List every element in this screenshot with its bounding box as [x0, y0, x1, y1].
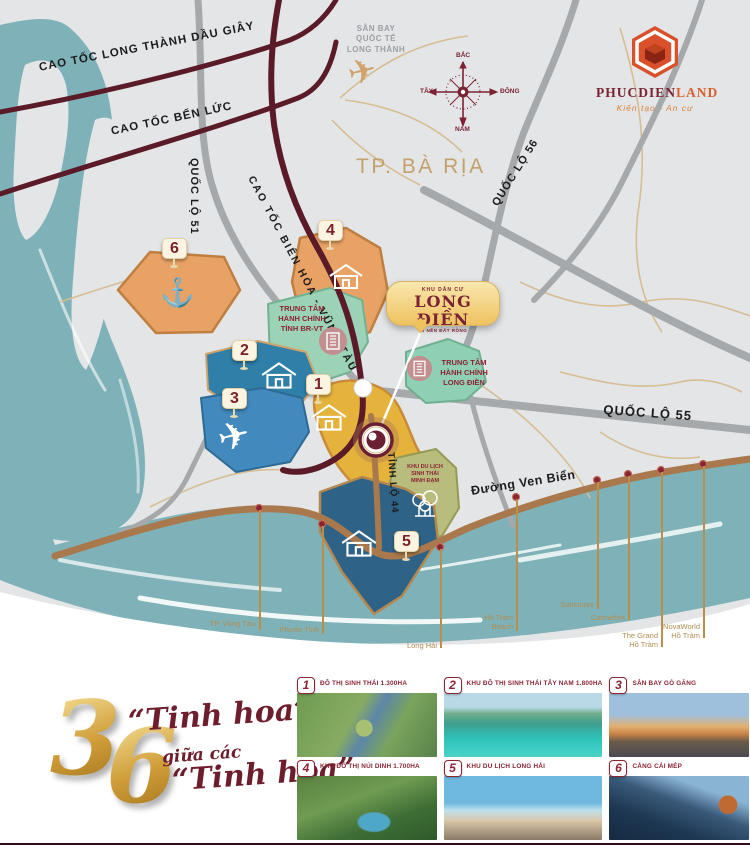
legend-label: SÂN BAY GÒ GĂNG [632, 677, 696, 688]
legend-number: 6 [609, 760, 627, 777]
legend-grid: 1 ĐÔ THỊ SINH THÁI 1.300HA 2 KHU ĐÔ THỊ … [297, 677, 749, 840]
minhdam-label: KHU DU LỊCH SINH THÁI MINH ĐẠM [402, 464, 448, 485]
legend-number: 5 [444, 760, 462, 777]
legend-item-5: 5 KHU DU LỊCH LONG HẢI [444, 760, 603, 840]
trees-icon [408, 488, 442, 522]
city-label-baria: TP. BÀ RỊA [356, 155, 486, 179]
brand-tagline: Kiến tạo - An cư [596, 103, 714, 113]
bottom-divider [0, 843, 750, 845]
pinline-phuoctinh [322, 526, 324, 634]
road-label-ql51: QUỐC LỘ 51 [188, 158, 200, 235]
legend-item-2: 2 KHU ĐÔ THỊ SINH THÁI TÂY NAM 1.800HA [444, 677, 603, 757]
compass-north-label: BẮC [456, 52, 470, 59]
brand-monogram-icon [629, 24, 681, 80]
map-marker-5: 5 [394, 531, 419, 561]
house-icon-zone1 [308, 402, 350, 434]
legend-item-4: 4 KHU ĐÔ THỊ NÚI DINH 1.700HA [297, 760, 437, 840]
project-badge: KHU DÂN CƯ LONG ĐIỀN 36 NỀN ĐẤT RỒNG [386, 281, 500, 326]
legend-photo-southwest-eco [444, 693, 603, 757]
pinline-sanctuary [597, 482, 599, 609]
house-icon-zone5 [338, 528, 380, 560]
pinline-carmelina [628, 476, 630, 620]
brand-name: PHUCDIENLAND [596, 85, 714, 101]
compass-west-label: TÂY [420, 88, 433, 95]
airport-label: SÂN BAY QUỐC TẾ LONG THÀNH [338, 24, 414, 55]
project-badge-title: LONG ĐIỀN [387, 293, 499, 328]
longdien-admin-label: TRUNG TÂM HÀNH CHÍNH LONG ĐIỀN [438, 358, 490, 387]
marker-number: 3 [222, 388, 247, 409]
compass-east-label: ĐÔNG [500, 88, 520, 95]
legend-photo-eco-city [297, 693, 437, 757]
legend-item-1: 1 ĐÔ THỊ SINH THÁI 1.300HA [297, 677, 437, 757]
marker-number: 2 [232, 340, 257, 361]
compass-south-label: NAM [455, 126, 470, 133]
legend-item-3: 3 SÂN BAY GÒ GĂNG [609, 677, 749, 757]
coast-label-sanctuary: Sanctuary [547, 600, 594, 609]
map-marker-6: 6 [162, 238, 187, 268]
project-badge-subtitle: 36 NỀN ĐẤT RỒNG [387, 328, 499, 333]
legend-label: CẢNG CÁI MÉP [632, 760, 682, 771]
house-icon-zone4 [326, 262, 366, 292]
map-marker-2: 2 [232, 340, 257, 370]
pinline-longhai [440, 549, 442, 648]
marker-number: 5 [394, 531, 419, 552]
legend-number: 4 [297, 760, 315, 777]
map-marker-4: 4 [318, 220, 343, 250]
legend-label: KHU ĐÔ THỊ NÚI DINH 1.700HA [320, 760, 420, 771]
pinline-thegrand [661, 472, 663, 647]
legend-photo-airport [609, 693, 749, 757]
tagline-line1: “Tinh hoa” [127, 692, 313, 740]
legend-item-6: 6 CẢNG CÁI MÉP [609, 760, 749, 840]
pinline-vungtau [259, 510, 261, 630]
junction-node [354, 379, 372, 397]
map-marker-1: 1 [306, 374, 331, 404]
legend-label: ĐÔ THỊ SINH THÁI 1.300HA [320, 677, 407, 688]
brand-name-secondary: LAND [676, 85, 718, 100]
house-icon-zone2 [258, 360, 300, 392]
brand-name-primary: PHUCDIEN [596, 85, 676, 100]
pinline-novaworld [703, 466, 705, 638]
map-poster: CAO TỐC LONG THÀNH DẦU GIÂY CAO TỐC BẾN … [0, 0, 750, 850]
legend-photo-port [609, 776, 749, 840]
longdien-building-icon [406, 355, 433, 382]
coast-label-carmelina: Carmelina [577, 613, 625, 622]
legend-number: 1 [297, 677, 315, 694]
coast-label-hotrambeach: Hồ Tràm Beach [470, 613, 513, 632]
marker-number: 6 [162, 238, 187, 259]
marker-number: 1 [306, 374, 331, 395]
marker-number: 4 [318, 220, 343, 241]
map-marker-3: 3 [222, 388, 247, 418]
coast-label-novaworld: NovaWorld Hồ Tràm [651, 622, 700, 641]
legend-label: KHU ĐÔ THỊ SINH THÁI TÂY NAM 1.800HA [467, 677, 603, 688]
legend-number: 2 [444, 677, 462, 694]
legend-photo-beach [444, 776, 603, 840]
legend-label: KHU DU LỊCH LONG HẢI [467, 760, 546, 771]
brvt-building-icon [318, 326, 348, 356]
legend-photo-nui-dinh [297, 776, 437, 840]
coast-label-vungtau: TP. Vũng Tàu [202, 619, 255, 628]
pinline-hotrambeach [516, 499, 518, 631]
coast-label-longhai: Long Hải [395, 641, 437, 650]
anchor-icon: ⚓ [160, 276, 195, 309]
legend-number: 3 [609, 677, 627, 694]
coast-label-phuoctinh: Phước Tỉnh [272, 625, 319, 634]
brand-logo: PHUCDIENLAND Kiến tạo - An cư [596, 24, 714, 113]
